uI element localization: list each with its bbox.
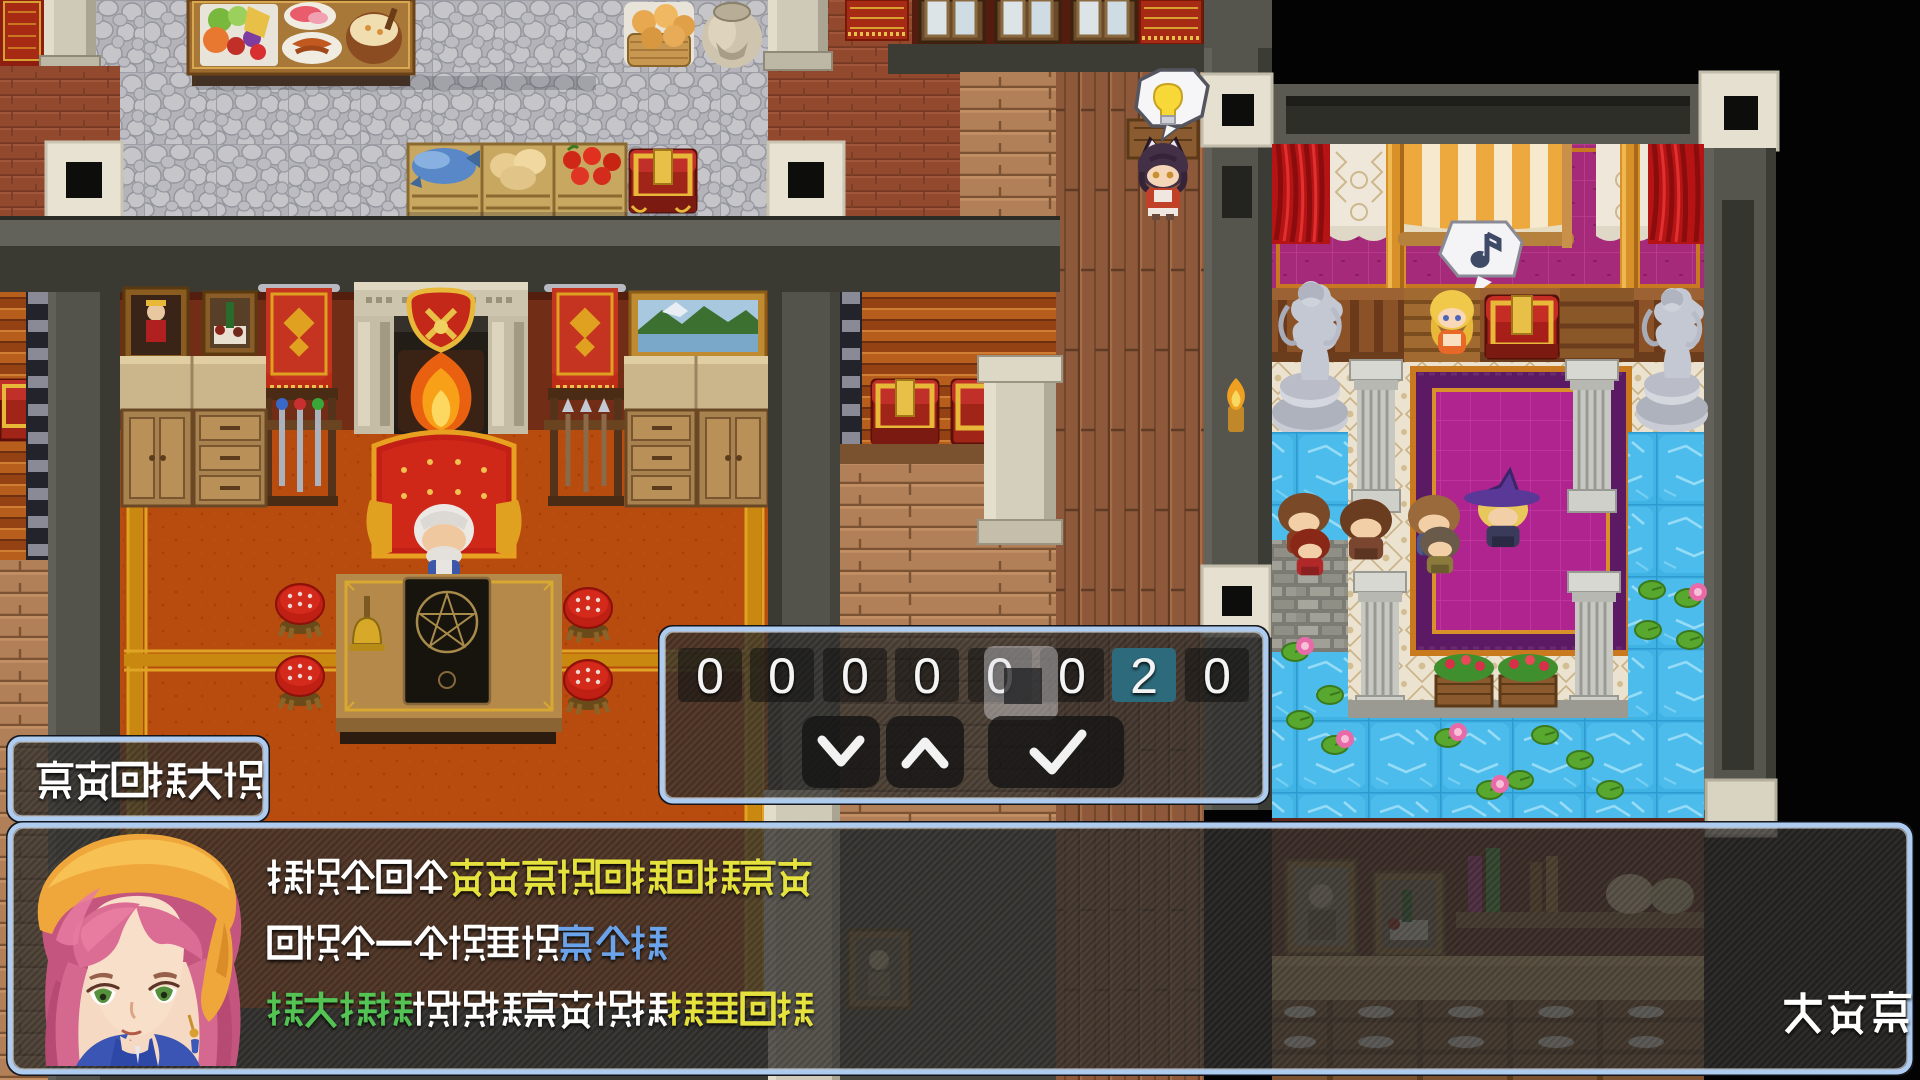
- svg-text:2: 2: [1130, 648, 1158, 704]
- svg-text:0: 0: [696, 648, 724, 704]
- svg-text:0: 0: [913, 648, 941, 704]
- svg-text:0: 0: [1058, 648, 1086, 704]
- svg-text:0: 0: [841, 648, 869, 704]
- svg-text:0: 0: [1203, 648, 1231, 704]
- svg-text:0: 0: [768, 648, 796, 704]
